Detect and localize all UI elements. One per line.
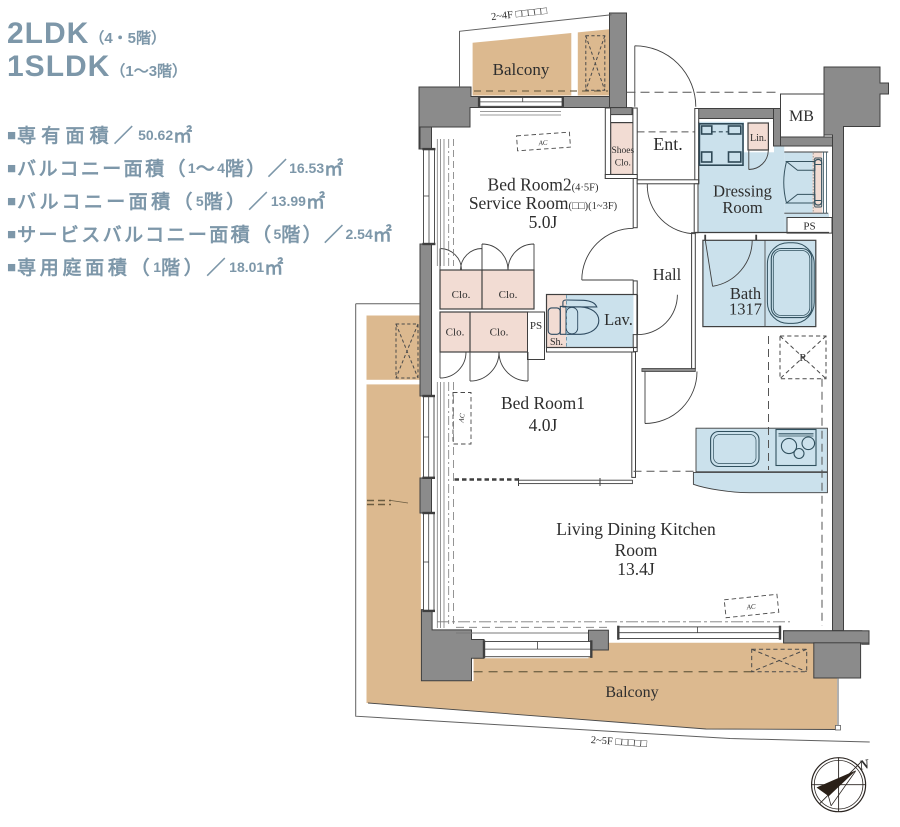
svg-text:Balcony: Balcony — [605, 684, 658, 701]
svg-text:MB: MB — [789, 108, 814, 125]
svg-text:Clo.: Clo. — [490, 327, 509, 339]
svg-text:Living Dining Kitchen: Living Dining Kitchen — [556, 519, 716, 539]
svg-text:AC: AC — [457, 413, 467, 425]
svg-text:N: N — [857, 756, 872, 773]
svg-text:Sh.: Sh. — [550, 337, 563, 348]
svg-text:2~4F □□□□□: 2~4F □□□□□ — [491, 6, 549, 23]
svg-text:1317: 1317 — [729, 300, 762, 319]
svg-text:AC: AC — [537, 139, 548, 148]
svg-text:PS: PS — [530, 320, 542, 332]
svg-text:Clo.: Clo. — [446, 327, 465, 339]
svg-text:PS: PS — [803, 221, 815, 233]
svg-text:Room: Room — [722, 198, 763, 217]
svg-text:Clo.: Clo. — [452, 289, 471, 301]
svg-text:Lin.: Lin. — [750, 133, 766, 144]
svg-text:Hall: Hall — [653, 265, 682, 284]
svg-text:Room: Room — [615, 540, 658, 560]
svg-text:Bed Room1: Bed Room1 — [501, 393, 585, 413]
svg-text:Balcony: Balcony — [493, 60, 550, 79]
svg-text:R: R — [799, 352, 807, 364]
svg-text:Clo.: Clo. — [615, 159, 631, 169]
svg-text:Clo.: Clo. — [499, 289, 518, 301]
svg-text:2~5F □□□□□: 2~5F □□□□□ — [590, 735, 648, 750]
svg-text:4.0J: 4.0J — [529, 415, 558, 435]
svg-text:Shoes: Shoes — [611, 146, 634, 156]
svg-text:AC: AC — [745, 603, 756, 612]
svg-text:5.0J: 5.0J — [529, 212, 558, 232]
svg-text:Bed Room2(4·5F): Bed Room2(4·5F) — [488, 175, 599, 195]
svg-text:Lav.: Lav. — [604, 310, 633, 329]
svg-text:Service Room(□□)(1~3F): Service Room(□□)(1~3F) — [469, 193, 618, 213]
svg-text:13.4J: 13.4J — [617, 559, 655, 579]
svg-text:Ent.: Ent. — [653, 134, 683, 154]
